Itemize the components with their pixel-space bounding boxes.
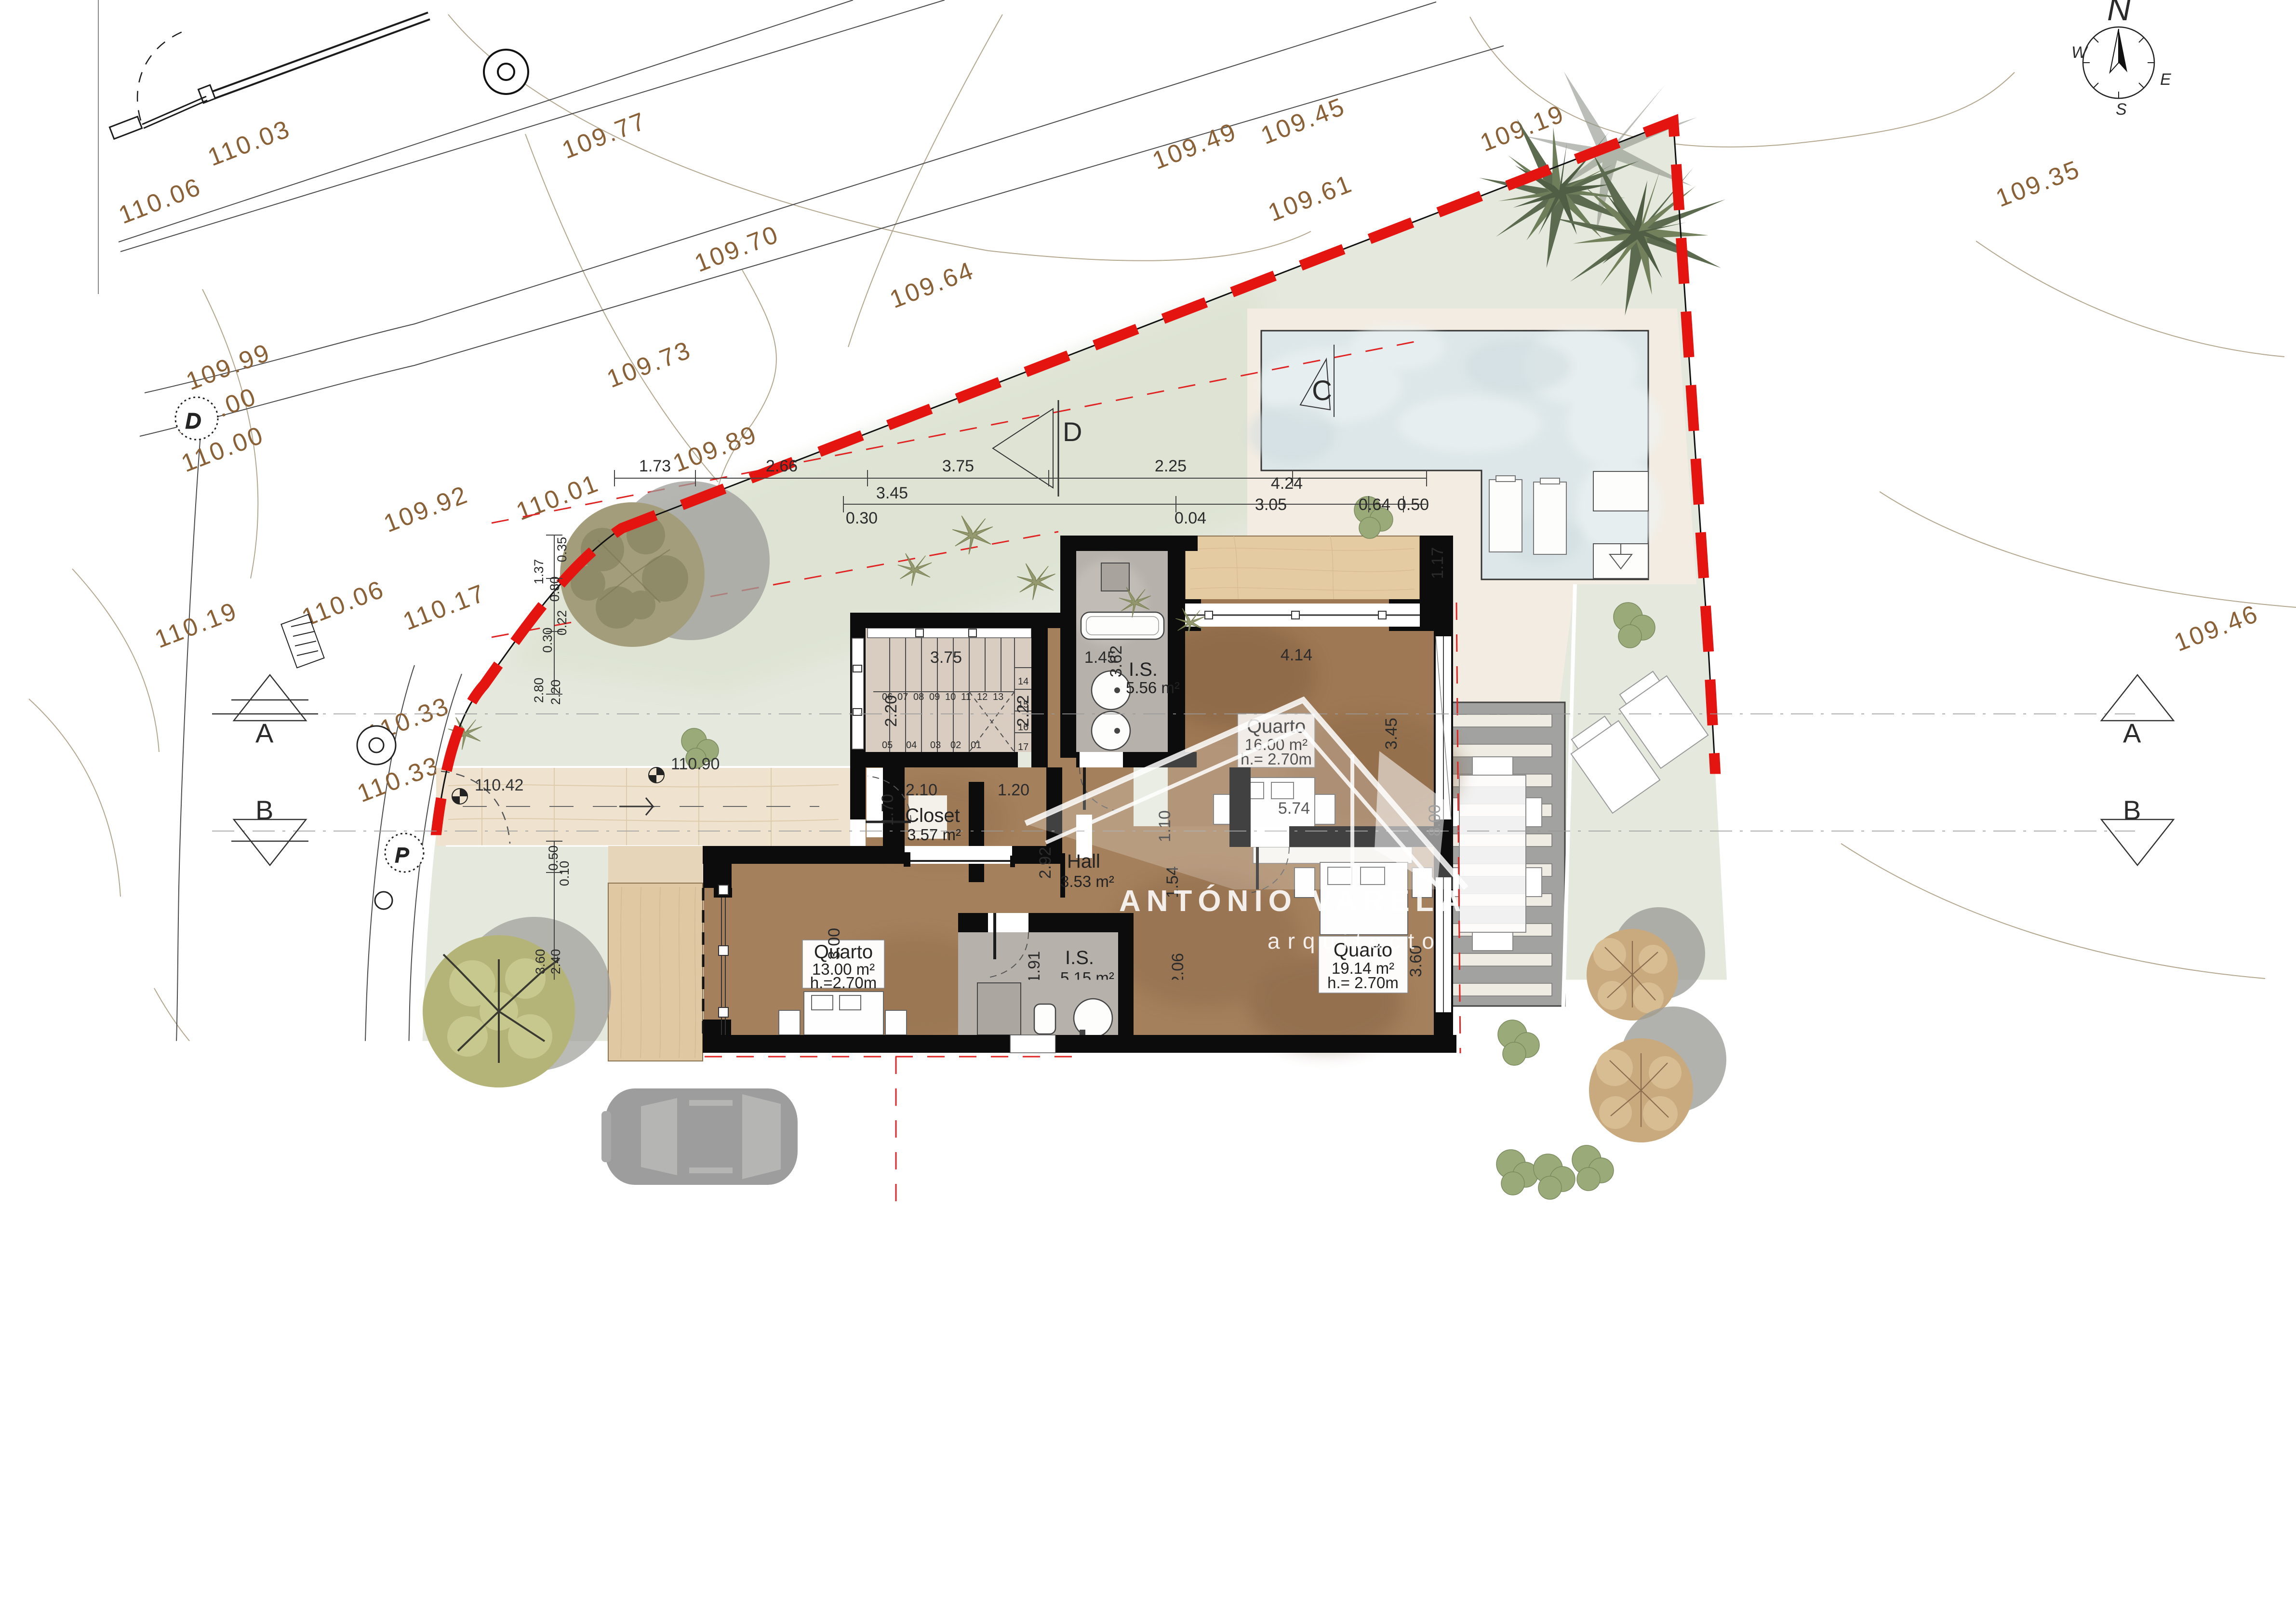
svg-text:Muros: Muros	[734, 1541, 775, 1557]
svg-text:2.06: 2.06	[1169, 953, 1187, 985]
svg-text:00: 00	[1201, 1456, 1218, 1473]
svg-text:ANTÓNIO VARELA: ANTÓNIO VARELA	[1119, 885, 1467, 918]
svg-text:4.11: 4.11	[833, 1007, 864, 1025]
svg-text:Deck Cerâmico sobre betonilha: Deck Cerâmico sobre betonilha	[207, 1472, 416, 1489]
svg-text:1.70: 1.70	[879, 794, 897, 826]
svg-text:I.S.: I.S.	[1065, 947, 1094, 968]
svg-text:S: S	[2116, 100, 2127, 119]
svg-text:2.20: 2.20	[548, 680, 563, 705]
svg-text:1.57: 1.57	[1383, 1075, 1415, 1093]
svg-text:Hall: Hall	[1067, 851, 1100, 872]
svg-text:1/100: 1/100	[2130, 1427, 2217, 1466]
svg-text:1.17: 1.17	[1428, 547, 1447, 579]
svg-text:02: 02	[178, 1441, 190, 1453]
svg-text:Antonio Varela: Antonio Varela	[1301, 1504, 1479, 1528]
svg-text:(máx. 02 Pisos): (máx. 02 Pisos)	[988, 1476, 1062, 1488]
svg-text:110.42: 110.42	[475, 776, 523, 794]
svg-text:Habitação - Piso 00: Habitação - Piso 00	[174, 1329, 305, 1345]
svg-text:1.73: 1.73	[639, 457, 671, 475]
svg-text:E: E	[2160, 70, 2171, 89]
svg-text:N: N	[2107, 0, 2131, 27]
svg-text:formato: formato	[2217, 1453, 2259, 1467]
svg-text:W: W	[2071, 43, 2088, 62]
svg-text:AV.448.2021: AV.448.2021	[2076, 1350, 2190, 1372]
svg-text:194.14: 194.14	[1172, 1397, 1218, 1414]
svg-text:REQUERENTE: REQUERENTE	[1588, 1379, 1682, 1394]
svg-text:0.50: 0.50	[1397, 496, 1429, 514]
svg-text:113.92: 113.92	[1251, 986, 1299, 1004]
svg-text:Calçada Portuguesa sobre terre: Calçada Portuguesa sobre terreno compact…	[207, 1422, 521, 1438]
svg-text:Habitação - Total: Habitação - Total	[174, 1363, 286, 1380]
svg-text:2.40: 2.40	[548, 949, 563, 975]
svg-text:3.62: 3.62	[1107, 645, 1125, 677]
svg-text:(máx. 00 Pisos): (máx. 00 Pisos)	[988, 1460, 1062, 1472]
svg-text:0.80 m: 0.80 m	[1172, 1556, 1218, 1573]
svg-text:2.22: 2.22	[1014, 695, 1032, 727]
svg-text:152.05: 152.05	[1172, 1381, 1218, 1397]
svg-text:01: 01	[2251, 1545, 2276, 1571]
svg-text:102.77: 102.77	[615, 1329, 661, 1345]
svg-text:Área Permeável: Área Permeável	[174, 1536, 281, 1553]
svg-text:5.00: 5.00	[1310, 1021, 1342, 1039]
svg-text:3.53 m²: 3.53 m²	[1060, 872, 1114, 890]
svg-text:RUBRICA: RUBRICA	[1972, 1334, 2033, 1349]
svg-text:(máx. 280.00 m²): (máx. 280.00 m²)	[431, 1332, 512, 1344]
svg-text:3.75: 3.75	[942, 457, 974, 475]
svg-text:C: C	[1357, 1277, 1376, 1307]
svg-text:(Altura): (Altura)	[795, 1560, 830, 1572]
svg-text:213.19: 213.19	[1172, 1363, 1218, 1380]
svg-text:110.90: 110.90	[671, 755, 720, 773]
svg-text:14: 14	[1018, 676, 1028, 687]
svg-text:118.08: 118.08	[616, 1438, 661, 1455]
svg-text:D: D	[1063, 416, 1082, 447]
svg-text:2.20: 2.20	[882, 695, 900, 727]
svg-text:5.56 m²: 5.56 m²	[1126, 679, 1180, 697]
svg-text:12: 12	[977, 692, 988, 702]
svg-text:(máx. 305.00 m²): (máx. 305.00 m²)	[988, 1367, 1069, 1379]
svg-text:Quarto: Quarto	[814, 941, 873, 963]
svg-text:permeab. - 0 %: permeab. - 0 %	[533, 1460, 605, 1472]
svg-text:permeab. - 0 %: permeab. - 0 %	[533, 1476, 605, 1488]
svg-text:02: 02	[1201, 1472, 1218, 1489]
svg-text:134.08 m²: 134.08 m²	[436, 1536, 504, 1553]
svg-text:0.04: 0.04	[1175, 509, 1206, 527]
svg-text:2.66: 2.66	[766, 457, 798, 475]
svg-text:4.14: 4.14	[1281, 646, 1312, 664]
svg-text:permeab. - 100 %: permeab. - 100 %	[518, 1442, 602, 1454]
svg-text:0.10: 0.10	[557, 1023, 572, 1048]
svg-text:Piso 1: Piso 1	[1615, 1528, 1692, 1559]
svg-text:04: 04	[906, 740, 917, 751]
svg-text:Muros: Muros	[734, 1556, 775, 1573]
svg-text:0.22: 0.22	[555, 610, 569, 636]
svg-text:Área Bruta de Construção: Área Bruta de Construção	[734, 1363, 907, 1380]
svg-text:4.24: 4.24	[1271, 474, 1303, 493]
svg-text:110.90: 110.90	[451, 1081, 499, 1099]
svg-text:91.37: 91.37	[624, 1346, 661, 1363]
svg-text:FOLHA: FOLHA	[2076, 1476, 2122, 1491]
svg-text:03: 03	[930, 740, 941, 751]
svg-text:2.92: 2.92	[1036, 847, 1055, 879]
svg-text:versão: versão	[2212, 1550, 2250, 1565]
svg-text:02: 02	[950, 740, 961, 751]
svg-text:01: 01	[178, 1424, 190, 1436]
svg-text:A: A	[255, 718, 274, 748]
svg-text:I.S.: I.S.	[1129, 659, 1158, 680]
svg-text:(Extensão): (Extensão)	[795, 1544, 846, 1557]
svg-text:P: P	[395, 844, 409, 866]
svg-text:Arq. António Varela: Arq. António Varela	[1615, 1349, 1788, 1371]
svg-text:32.01: 32.01	[624, 1422, 661, 1438]
svg-text:03: 03	[178, 1458, 190, 1470]
svg-text:39.04%: 39.04%	[611, 1536, 661, 1553]
svg-text:A: A	[2123, 718, 2141, 748]
svg-text:Troviscal: Troviscal	[1615, 1438, 1695, 1461]
svg-text:B: B	[2123, 795, 2141, 825]
svg-text:Número Total de Pisos: Número Total de Pisos	[734, 1472, 884, 1489]
svg-text:3.45: 3.45	[1382, 718, 1401, 750]
svg-text:arquitectura: arquitectura	[2130, 1390, 2237, 1413]
svg-text:Cabanas: Cabanas	[1894, 1438, 1975, 1461]
svg-text:(m²): (m²)	[634, 1311, 661, 1328]
svg-text:23.43: 23.43	[624, 1456, 661, 1473]
svg-text:Área do Lote: Área do Lote	[734, 1329, 820, 1345]
svg-text:B: B	[255, 795, 273, 825]
svg-text:Habitação - Piso 01: Habitação - Piso 01	[174, 1346, 305, 1363]
svg-text:(máx. 25.00 m²): (máx. 25.00 m²)	[431, 1384, 506, 1396]
svg-text:60.96%: 60.96%	[611, 1553, 661, 1570]
svg-text:194.14: 194.14	[615, 1363, 661, 1380]
svg-text:04: 04	[178, 1475, 190, 1487]
svg-text:ARQUITECTURA: ARQUITECTURA	[1524, 1349, 1552, 1564]
svg-text:(m²): (m²)	[1190, 1311, 1218, 1328]
svg-text:Acima da Cota de Soleira: Acima da Cota de Soleira	[734, 1438, 904, 1455]
svg-text:Relva: Relva	[207, 1438, 246, 1455]
svg-text:19.05: 19.05	[624, 1381, 661, 1397]
svg-text:1.93: 1.93	[1114, 1075, 1146, 1093]
svg-text:5.54: 5.54	[825, 1075, 857, 1093]
svg-text:Abaixo da Cota de Soleira: Abaixo da Cota de Soleira	[734, 1456, 908, 1473]
svg-text:Volume de Construção: Volume de Construção	[734, 1524, 885, 1541]
svg-text:11.2021: 11.2021	[2207, 1350, 2279, 1372]
svg-text:102.77: 102.77	[1172, 1346, 1218, 1363]
svg-text:AUTORIA: AUTORIA	[1588, 1334, 1648, 1349]
svg-text:343.40: 343.40	[1172, 1329, 1218, 1345]
svg-text:Superficie de Pavimentos: Superficie de Pavimentos	[734, 1397, 904, 1414]
svg-text:Piscina: Piscina	[207, 1456, 256, 1473]
svg-text:A3: A3	[2263, 1444, 2294, 1472]
svg-text:02: 02	[1201, 1438, 1218, 1455]
svg-text:3.75: 3.75	[930, 648, 962, 667]
svg-text:Área de Implantação: Área de Implantação	[734, 1346, 872, 1363]
svg-text:(máx. 280.00 m²): (máx. 280.00 m²)	[431, 1367, 512, 1379]
svg-text:17: 17	[1018, 742, 1028, 752]
svg-text:C: C	[1312, 375, 1332, 406]
svg-text:3.60: 3.60	[533, 949, 547, 975]
svg-text:1.73: 1.73	[639, 1075, 670, 1093]
svg-text:Implantação garagem: Implantação garagem	[174, 1381, 319, 1397]
svg-text:Closet: Closet	[905, 805, 960, 826]
svg-text:D: D	[186, 409, 201, 433]
svg-text:0.30: 0.30	[846, 509, 878, 527]
svg-text:DVP: DVP	[1615, 1394, 1656, 1417]
svg-text:2.68: 2.68	[1091, 1021, 1123, 1039]
svg-text:arquitecto: arquitecto	[1268, 928, 1442, 953]
svg-text:Área Impermeável: Área Impermeável	[174, 1553, 296, 1570]
svg-text:09: 09	[929, 692, 940, 702]
svg-text:h.=2.70m: h.=2.70m	[810, 974, 877, 992]
svg-text:0.80: 0.80	[547, 577, 562, 602]
svg-text:3.00: 3.00	[825, 928, 843, 960]
svg-text:2.10: 2.10	[906, 781, 937, 799]
svg-text:5.15 m²: 5.15 m²	[1060, 969, 1114, 987]
svg-text:Cércea: Cércea	[734, 1489, 783, 1506]
svg-text:0.35: 0.35	[555, 537, 569, 563]
svg-text:D: D	[383, 1087, 398, 1109]
svg-text:OA.13718: OA.13718	[1802, 1350, 1881, 1370]
svg-text:3.05: 3.05	[1255, 496, 1287, 514]
svg-text:1.37: 1.37	[532, 559, 546, 585]
svg-text:0.10: 0.10	[557, 861, 572, 886]
svg-text:11: 11	[961, 692, 971, 702]
svg-text:639.57 m³: 639.57 m³	[1150, 1524, 1218, 1541]
svg-text:6.50 m: 6.50 m	[1172, 1489, 1218, 1506]
svg-text:0.64: 0.64	[1359, 496, 1390, 514]
svg-text:Lote 11: Lote 11	[1783, 1438, 1849, 1461]
svg-text:PROCESSO: PROCESSO	[2076, 1334, 2153, 1349]
svg-text:Área Útil de Construção: Área Útil de Construção	[734, 1381, 893, 1397]
svg-text:P. 02: P. 02	[2117, 1488, 2229, 1545]
svg-text:73.82 m: 73.82 m	[1164, 1541, 1218, 1557]
svg-text:1.20: 1.20	[998, 781, 1029, 799]
svg-text:PLANTA: PLANTA	[1587, 1473, 1745, 1519]
svg-text:0.30: 0.30	[540, 628, 555, 653]
svg-text:3.57 m²: 3.57 m²	[907, 826, 961, 844]
svg-text:1.91: 1.91	[1025, 951, 1043, 983]
svg-text:(máx. 280.00 m²): (máx. 280.00 m²)	[988, 1401, 1069, 1413]
svg-text:(máx. 6.50 m ): (máx. 6.50 m )	[988, 1493, 1057, 1505]
svg-text:2.25: 2.25	[1155, 457, 1187, 475]
svg-text:ESCALA: ESCALA	[2076, 1427, 2130, 1442]
svg-text:0.80: 0.80	[1023, 1075, 1055, 1093]
svg-text:h.= 2.70m: h.= 2.70m	[1327, 974, 1399, 992]
svg-text:Data: Data	[2203, 1334, 2232, 1349]
svg-text:2.80: 2.80	[532, 678, 546, 703]
svg-text:3.00: 3.00	[1430, 1137, 1448, 1169]
svg-text:3.45: 3.45	[876, 484, 908, 502]
svg-text:01: 01	[971, 740, 981, 751]
svg-text:(máx. 02 Pisos): (máx. 02 Pisos)	[988, 1442, 1062, 1454]
svg-text:permeab. - 50%: permeab. - 50%	[533, 1425, 608, 1437]
svg-text:3.05: 3.05	[1266, 1075, 1298, 1093]
svg-text:08: 08	[913, 692, 924, 702]
svg-text:10: 10	[945, 692, 956, 702]
svg-text:209.32 m²: 209.32 m²	[436, 1553, 504, 1570]
svg-text:(máx. 280.00 m²): (máx. 280.00 m²)	[988, 1350, 1069, 1362]
svg-text:13: 13	[993, 692, 1003, 702]
svg-text:PALMELA: PALMELA	[1977, 1440, 2065, 1461]
svg-text:12.89: 12.89	[1056, 1098, 1097, 1116]
svg-text:48.06: 48.06	[624, 1472, 661, 1489]
svg-text:05: 05	[882, 740, 893, 751]
